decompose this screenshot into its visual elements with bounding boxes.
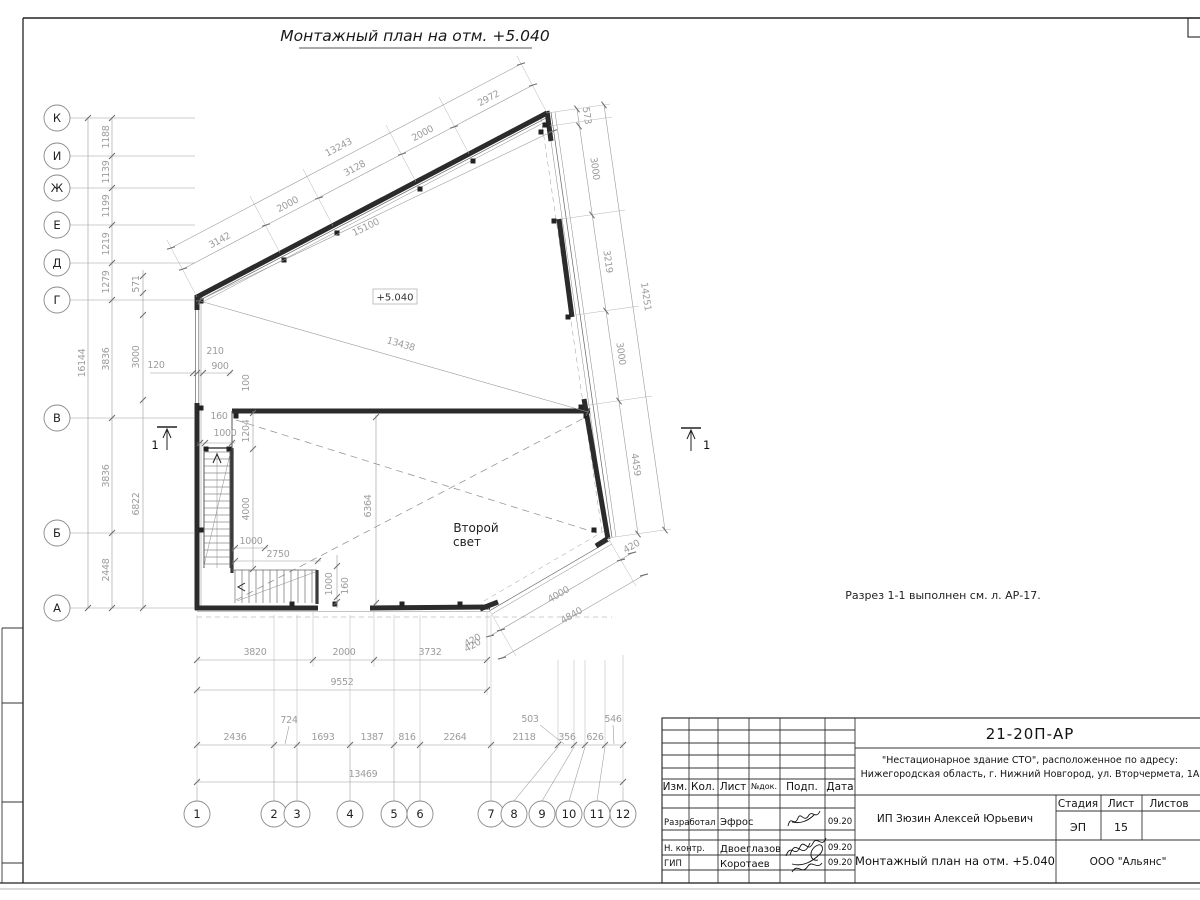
dim-label: 1387 <box>361 732 384 743</box>
dim-label: 100 <box>241 374 252 391</box>
sheets-header: Листов <box>1149 798 1188 810</box>
dim-label: 1188 <box>101 125 112 148</box>
tb-role: ГИП <box>664 859 682 869</box>
stair-direction-arrow-left <box>238 583 245 591</box>
tb-name: Двоеглазов <box>720 844 781 855</box>
corner-stamp-box <box>1188 18 1200 37</box>
axis-number: 11 <box>590 807 605 821</box>
dim-label: 1279 <box>101 270 112 293</box>
axis-grid-letters: К И Ж Е Д Г В Б А <box>44 105 195 621</box>
dim-label: 210 <box>206 346 223 357</box>
dim-label: 6364 <box>363 494 374 517</box>
page-title-text: Монтажный план на отм. +5.040 <box>280 27 550 45</box>
dim-label: 4000 <box>546 584 572 605</box>
tb-col-header: Лист <box>720 781 747 793</box>
dim-label: 3820 <box>244 647 267 658</box>
dim-label: 1204 <box>241 419 252 442</box>
axis-number: 9 <box>538 807 545 821</box>
left-dimensions: 1188 1139 1199 1219 1279 3836 3836 2448 … <box>77 115 233 611</box>
dim-label: 1139 <box>101 160 112 183</box>
tb-col-header: Дата <box>826 781 853 793</box>
document-number: 21-20П-АР <box>986 725 1075 743</box>
stair-treads-horizontal <box>235 570 312 603</box>
section-mark-left: 1 <box>151 427 177 452</box>
sheet-header: Лист <box>1108 798 1135 810</box>
tb-col-header: Кол. <box>691 781 715 793</box>
dim-label: 1000 <box>214 428 237 439</box>
axis-number: 8 <box>510 807 517 821</box>
dim-label: 2000 <box>333 647 356 658</box>
tb-date: 09.20 <box>828 858 852 868</box>
stage-header: Стадия <box>1058 798 1098 810</box>
bottom-dimensions: 3820 2000 3732 420 9552 <box>194 612 490 695</box>
void-diagonal-1 <box>236 420 597 533</box>
dim-label: 3000 <box>587 157 601 182</box>
title-block: Изм. Кол. Лист №док. Подп. Дата Разработ… <box>662 718 1200 883</box>
dim-label: 1000 <box>324 572 335 595</box>
dim-label: 2118 <box>513 732 536 743</box>
tb-col-header: Подп. <box>786 781 818 793</box>
dim-label: 900 <box>211 361 228 372</box>
right-wall-s2 <box>559 219 572 317</box>
dim-label: 4840 <box>559 605 585 626</box>
section-mark-right: 1 <box>681 428 710 452</box>
sheet-value: 15 <box>1114 821 1128 834</box>
tb-date: 09.20 <box>828 817 852 827</box>
top-wall <box>197 113 547 297</box>
signatures <box>786 811 826 872</box>
dim-label: 120 <box>147 360 164 371</box>
axis-number: 5 <box>390 807 397 821</box>
dim-label: 3000 <box>613 342 627 367</box>
axis-number: 7 <box>487 807 494 821</box>
right-dimensions: 573 3000 3219 3000 4459 14251 <box>547 102 671 538</box>
dim-label: 1199 <box>101 194 112 217</box>
elevation-value: +5.040 <box>376 293 413 304</box>
axis-number: 6 <box>416 807 423 821</box>
axis-number: 2 <box>270 807 277 821</box>
dim-label: 4000 <box>241 497 252 520</box>
dim-label: 2000 <box>410 123 436 144</box>
axis-letter: А <box>53 601 61 615</box>
axis-number: 1 <box>193 807 200 821</box>
dim-label: 816 <box>398 732 415 743</box>
column-markers <box>199 123 597 607</box>
dim-label: 3000 <box>131 345 142 368</box>
stage-value: ЭП <box>1070 821 1086 834</box>
dim-label: 14251 <box>638 282 653 312</box>
axis-number: 10 <box>562 807 577 821</box>
tb-name: Эфрос <box>720 817 754 828</box>
page-title: Монтажный план на отм. +5.040 <box>280 27 550 48</box>
dim-label: 356 <box>558 732 575 743</box>
dim-label: 13469 <box>349 769 378 780</box>
tb-role: Разработал <box>664 818 716 828</box>
dim-label: 546 <box>604 714 621 725</box>
left-margin-boxes <box>2 628 23 883</box>
dim-label: 571 <box>131 275 142 292</box>
signature-2 <box>786 838 826 865</box>
dim-label: 160 <box>210 411 227 422</box>
axis-letter: Г <box>53 293 60 307</box>
dim-label: 13438 <box>385 335 416 354</box>
project-line1: "Нестационарное здание СТО", расположенн… <box>882 755 1178 766</box>
axis-number: 4 <box>346 807 353 821</box>
dim-label: 724 <box>280 715 297 726</box>
dim-label: 3219 <box>600 250 614 275</box>
bottom-wall-right <box>370 607 490 608</box>
project-line2: Нижегородская область, г. Нижний Новгоро… <box>861 769 1200 780</box>
room-label-line1: Второй <box>453 521 498 535</box>
dim-label: 3732 <box>419 647 442 658</box>
dim-label: 1693 <box>312 732 335 743</box>
void-diagonal-2 <box>236 416 588 600</box>
dim-label: 2000 <box>275 194 301 215</box>
dim-label: 2750 <box>267 549 290 560</box>
dim-label: 160 <box>340 577 351 594</box>
top-dimensions: 3142 2000 3128 2000 2972 13243 15100 134… <box>167 56 590 416</box>
dim-label: 13243 <box>324 136 355 159</box>
dim-label: 3836 <box>101 347 112 370</box>
dim-label: 573 <box>580 106 593 125</box>
tb-name: Коротаев <box>720 859 770 870</box>
dim-label: 3836 <box>101 464 112 487</box>
chamfer-dimensions: 420 4000 420 4840 <box>463 538 649 659</box>
axis-number: 12 <box>616 807 631 821</box>
section-note: Разрез 1-1 выполнен см. л. АР-17. <box>845 589 1041 602</box>
signature-1 <box>788 811 820 826</box>
dim-label: 15100 <box>351 216 382 239</box>
staircase <box>204 452 315 603</box>
axis-letter: Д <box>53 256 62 270</box>
axis-letter: В <box>53 411 61 425</box>
dim-label: 2972 <box>476 88 502 109</box>
tb-col-header: №док. <box>751 782 777 791</box>
drawing-sheet: Монтажный план на отм. +5.040 Разрез 1-1… <box>0 0 1200 900</box>
dim-label: 16144 <box>77 348 88 377</box>
axis-letter: Б <box>53 526 61 540</box>
chamfer-cap-c <box>596 539 607 546</box>
dim-label: 4459 <box>628 453 642 478</box>
dim-label: 9552 <box>331 677 354 688</box>
axis-letter: Ж <box>51 181 64 195</box>
section-number: 1 <box>703 438 710 452</box>
drawing-title: Монтажный план на отм. +5.040 <box>855 854 1055 868</box>
dim-label: 626 <box>586 732 603 743</box>
dim-label: 1219 <box>101 232 112 255</box>
axis-letter: Е <box>53 218 60 232</box>
right-wall-s3 <box>584 399 608 539</box>
section-number: 1 <box>151 438 158 452</box>
dim-label: 1000 <box>240 536 263 547</box>
tb-col-header: Изм. <box>663 781 688 793</box>
client-name: ИП Зюзин Алексей Юрьевич <box>877 813 1033 825</box>
tb-date: 09.20 <box>828 843 852 853</box>
axis-letter: И <box>53 149 62 163</box>
room-label-line2: свет <box>453 535 481 549</box>
dim-label: 2436 <box>224 732 247 743</box>
elevation-mark: +5.040 <box>373 289 417 304</box>
company-name: ООО "Альянс" <box>1090 856 1167 868</box>
dim-label: 503 <box>521 714 538 725</box>
signature-3 <box>792 863 822 872</box>
axis-number: 3 <box>293 807 300 821</box>
chamfer-cap-d <box>480 602 498 609</box>
tb-role: Н. контр. <box>664 844 705 854</box>
dim-label: 2448 <box>101 558 112 581</box>
dim-label: 2264 <box>444 732 467 743</box>
dim-label: 6822 <box>131 492 142 515</box>
dim-label: 3142 <box>207 230 233 251</box>
dim-label: 3128 <box>342 158 368 179</box>
room-label: Второй свет <box>453 521 499 549</box>
axis-letter: К <box>53 111 61 125</box>
